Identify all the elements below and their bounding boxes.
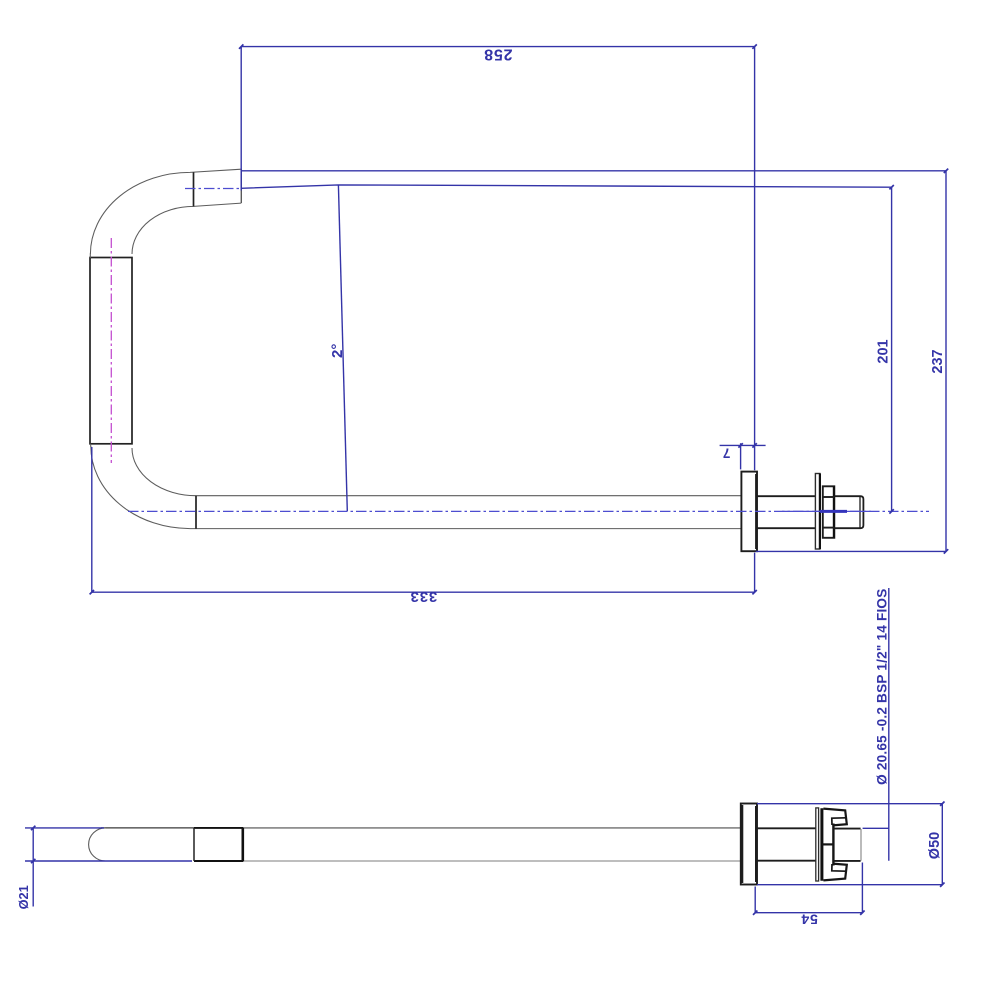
svg-text:237: 237 [930, 349, 946, 373]
svg-text:2°: 2° [329, 344, 346, 358]
svg-text:333: 333 [410, 588, 437, 605]
svg-text:Ø50: Ø50 [927, 832, 943, 859]
svg-text:Ø 20.65 -0.2 BSP 1/2" 14 FIOS: Ø 20.65 -0.2 BSP 1/2" 14 FIOS [874, 589, 889, 785]
svg-text:201: 201 [876, 339, 892, 363]
svg-text:Ø21: Ø21 [16, 885, 31, 909]
svg-text:54: 54 [801, 912, 818, 928]
svg-text:7: 7 [723, 445, 731, 460]
svg-text:258: 258 [483, 46, 512, 63]
